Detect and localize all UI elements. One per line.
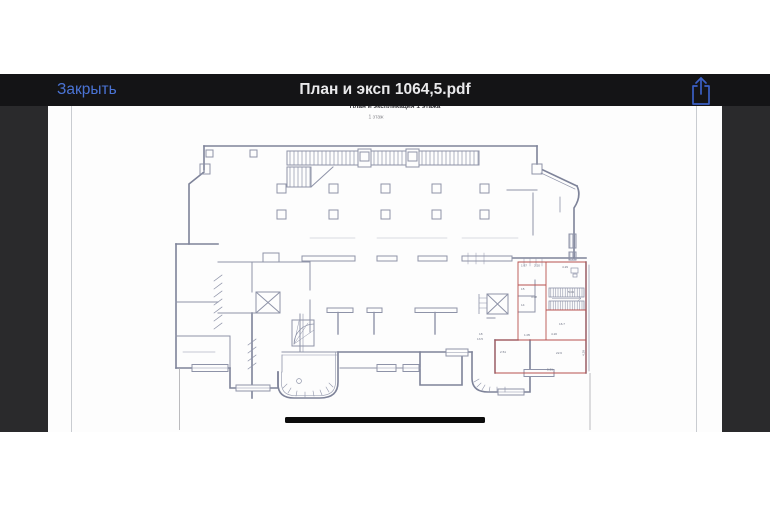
- navigation-bar: Закрыть План и эксп 1064,5.pdf: [0, 74, 770, 106]
- highlighted-suite-outline: [495, 262, 586, 373]
- close-button[interactable]: Закрыть: [57, 74, 117, 106]
- dimension-label: 5.04: [568, 290, 574, 294]
- dimension-label: 4.20: [551, 332, 557, 336]
- elevator-shaft-left: [256, 292, 280, 313]
- elevator-shaft-right: [479, 294, 508, 314]
- floor-plan-drawing: План и экспликация 1 этажа 1 этаж: [0, 106, 770, 432]
- dimension-label: 18: [479, 332, 483, 336]
- dimension-label: 3.08: [531, 295, 537, 299]
- pdf-viewer-screenshot: Закрыть План и эксп 1064,5.pdf: [0, 74, 770, 432]
- dimension-label: 4.29: [562, 265, 568, 269]
- redaction-bar: [285, 417, 485, 423]
- dimension-label: 1.05: [524, 333, 530, 337]
- dimension-label: 16.7: [559, 322, 565, 326]
- dimension-label: 1.67: [521, 264, 527, 268]
- dimension-label: 14: [521, 303, 525, 307]
- share-button[interactable]: [686, 75, 716, 106]
- dimension-label: 2.20: [534, 264, 540, 268]
- pdf-content-area[interactable]: План и экспликация 1 этажа 1 этаж: [0, 106, 770, 432]
- dimension-label: 4.28: [582, 350, 586, 356]
- share-icon: [686, 75, 716, 106]
- dimension-label: 15: [521, 287, 525, 291]
- dimension-label: 13.5: [477, 337, 483, 341]
- interior-walls: [176, 149, 589, 397]
- plan-header-cut: План и экспликация 1 этажа: [350, 106, 441, 110]
- floor-caption: 1 этаж: [369, 115, 385, 121]
- dimension-label: 22.6: [556, 351, 562, 355]
- stair-hatches: [549, 268, 584, 310]
- document-title: План и эксп 1064,5.pdf: [299, 74, 470, 106]
- dimension-label: 2.51: [500, 350, 506, 354]
- screenshot-canvas: { "navbar": { "close_label": "Закрыть", …: [0, 0, 770, 510]
- dimension-label: 5.51: [547, 368, 553, 372]
